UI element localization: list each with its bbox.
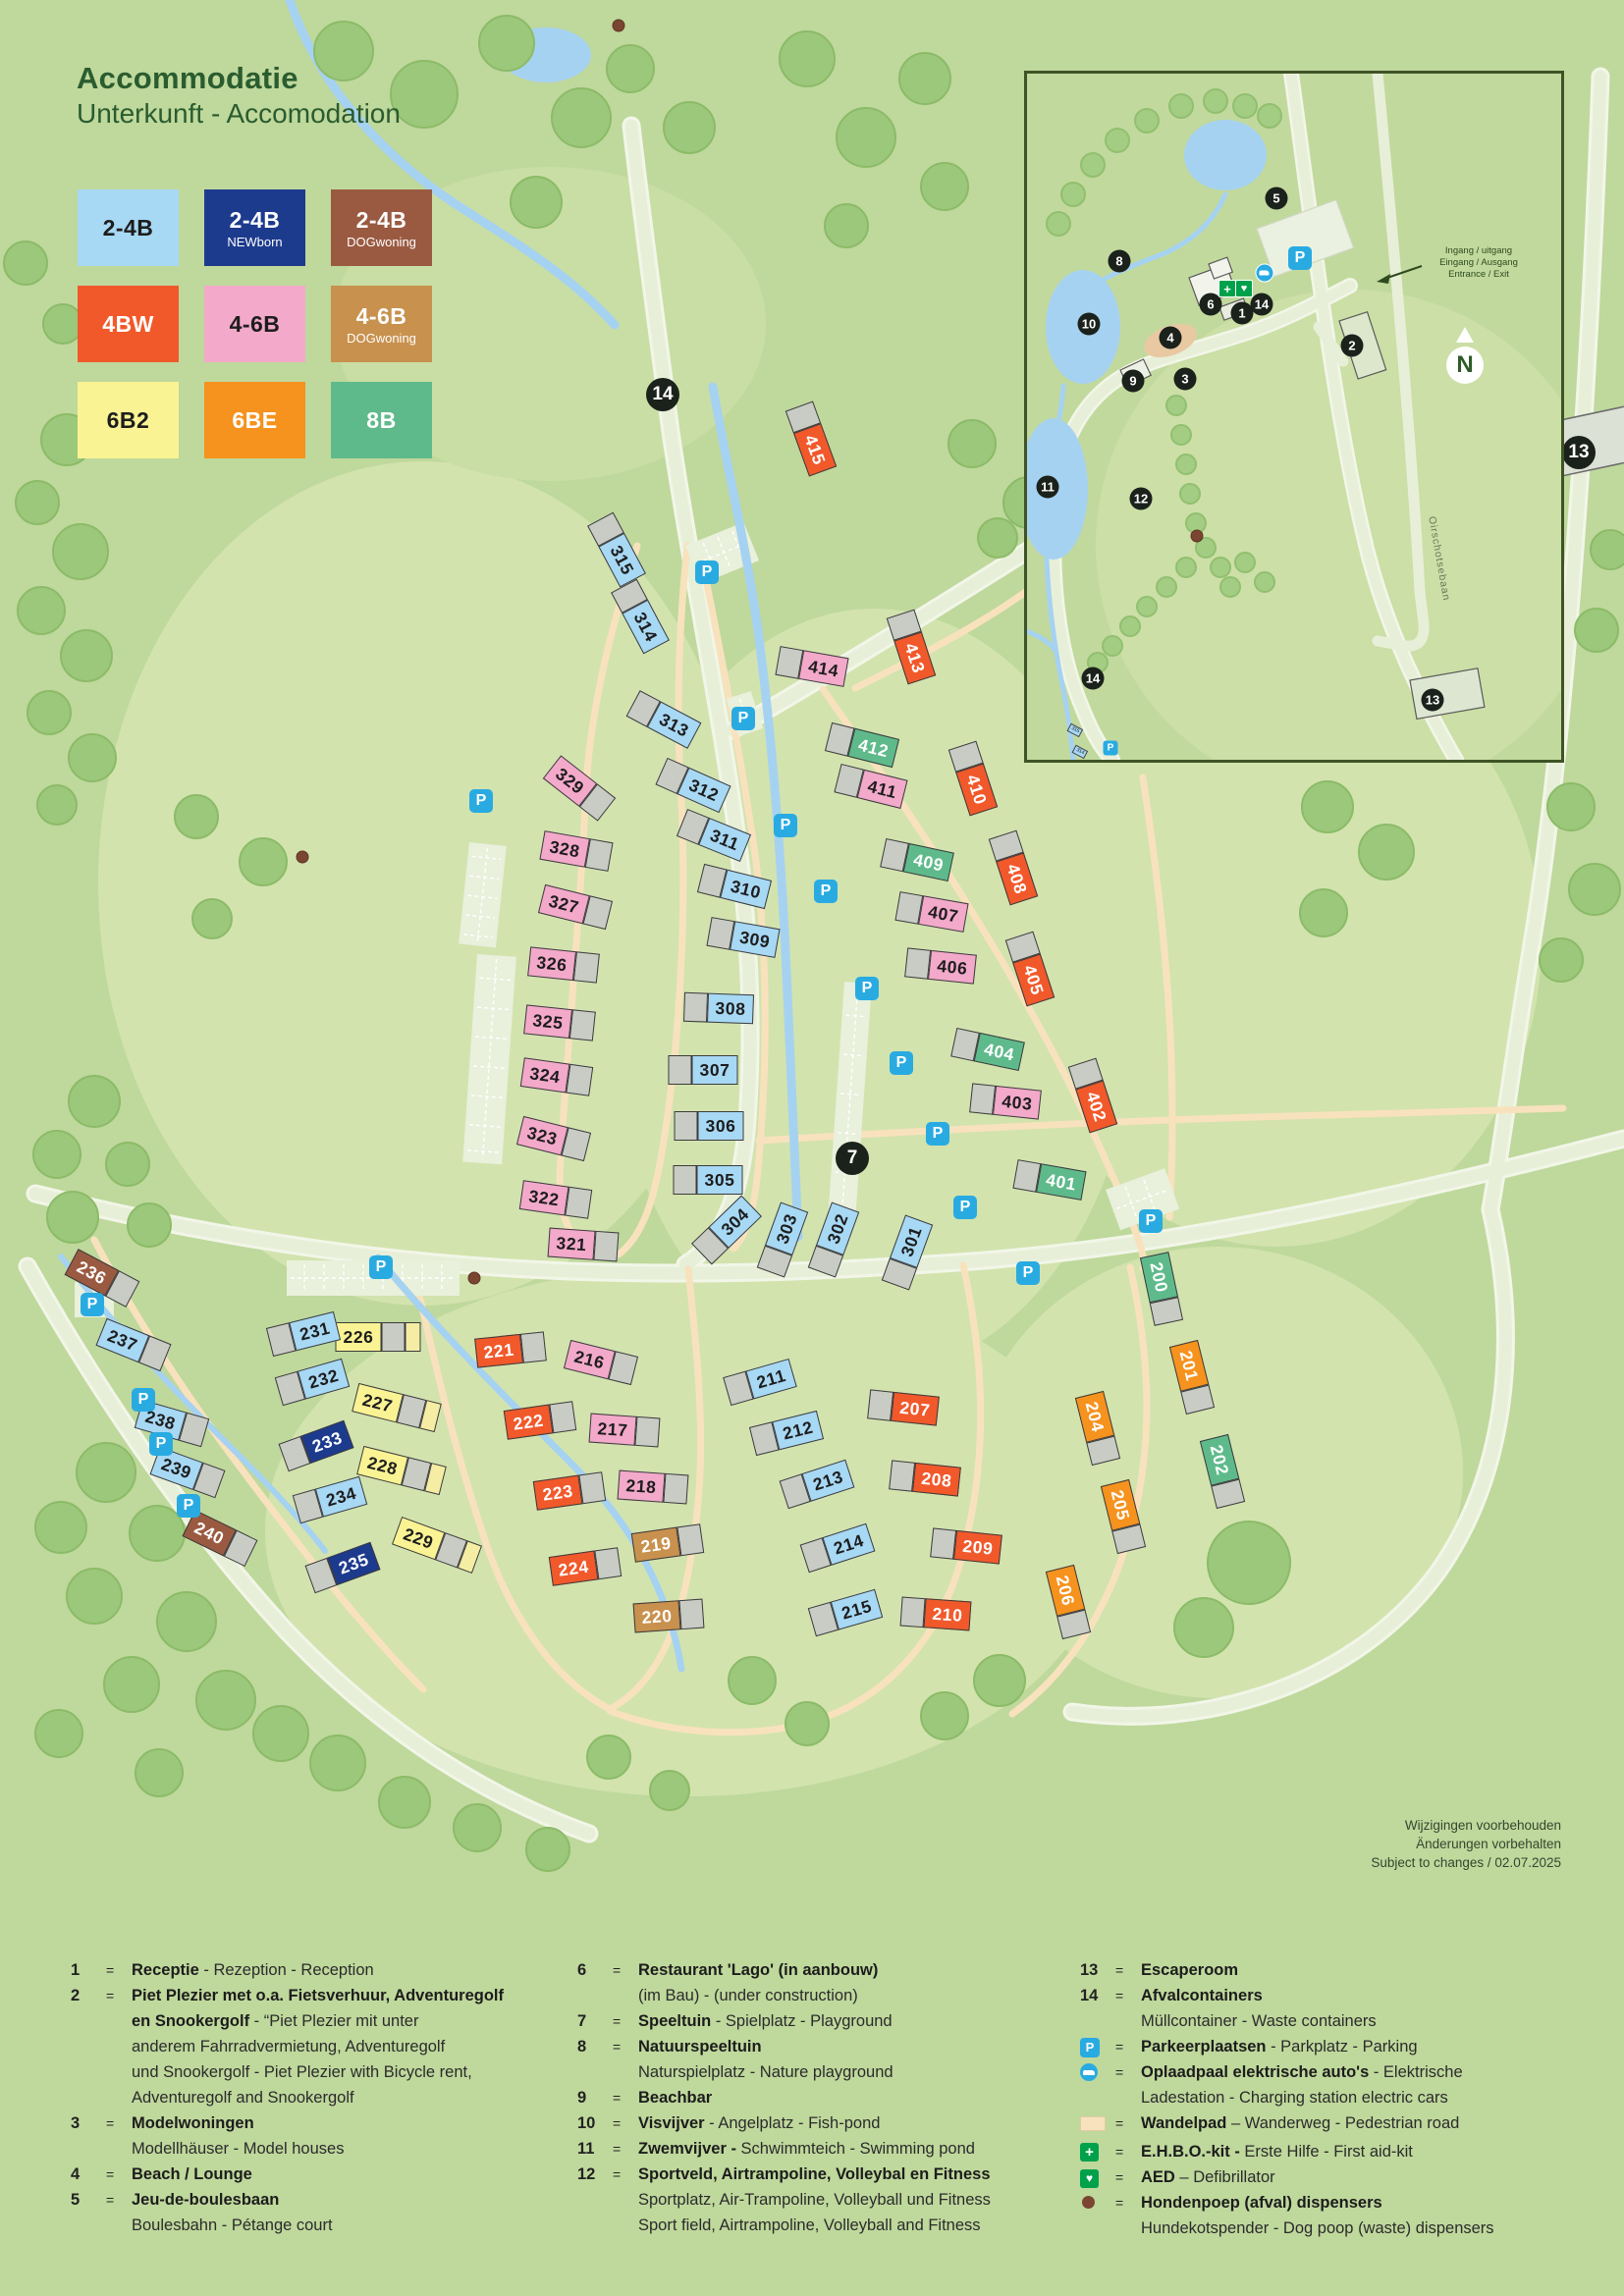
legend-column-3: 13=Escaperoom14=AfvalcontainersMüllconta… bbox=[1080, 1957, 1551, 2241]
equals-sign: = bbox=[106, 1957, 132, 1983]
building-number: 322 bbox=[519, 1180, 569, 1215]
legend-item: 2=Piet Plezier met o.a. Fietsverhuur, Ad… bbox=[71, 1983, 542, 2110]
equals-sign: = bbox=[613, 1957, 638, 1983]
note-line: Subject to changes / 02.07.2025 bbox=[1371, 1853, 1561, 1872]
parking-icon: P bbox=[1139, 1209, 1163, 1233]
equals-sign: = bbox=[1115, 2164, 1141, 2190]
tree-icon bbox=[552, 88, 611, 147]
tree-icon bbox=[18, 587, 65, 634]
equals-sign: = bbox=[106, 2162, 132, 2187]
legend-text: AED – Defibrillator bbox=[1141, 2164, 1551, 2190]
legend-line-rest: Schwimmteich - Swimming pond bbox=[736, 2140, 975, 2158]
type-swatch-8B: 8B bbox=[331, 382, 432, 458]
legend-item: 13=Escaperoom bbox=[1080, 1957, 1551, 1983]
building-number: 308 bbox=[707, 993, 754, 1025]
type-swatch-2-4B-DOGwoning: 2-4BDOGwoning bbox=[331, 189, 432, 266]
building-308: 308 bbox=[683, 992, 754, 1024]
tree-icon bbox=[607, 45, 654, 92]
type-sublabel: DOGwoning bbox=[347, 331, 416, 346]
equals-sign: = bbox=[613, 2136, 638, 2162]
dog-waste-icon bbox=[1082, 2196, 1095, 2209]
legend-line-bold: Piet Plezier met o.a. Fietsverhuur, Adve… bbox=[132, 1987, 504, 2004]
legend-text: Wandelpad – Wanderweg - Pedestrian road bbox=[1141, 2110, 1551, 2136]
legend-text: Hondenpoep (afval) dispensersHundekotspe… bbox=[1141, 2190, 1551, 2241]
type-swatch-4-6B-DOGwoning: 4-6BDOGwoning bbox=[331, 286, 432, 362]
building-number: 321 bbox=[548, 1228, 596, 1260]
legend-line-rest: - Elektrische bbox=[1369, 2063, 1462, 2081]
legend-line: Natuurspeeltuin bbox=[638, 2034, 1049, 2059]
tree-icon bbox=[1211, 558, 1230, 577]
legend-key: + bbox=[1080, 2139, 1115, 2164]
tree-icon bbox=[1171, 425, 1191, 445]
tree-icon bbox=[1569, 864, 1620, 915]
type-swatch-2-4B: 2-4B bbox=[78, 189, 179, 266]
legend-key: 11 bbox=[577, 2136, 613, 2162]
tree-icon bbox=[192, 899, 232, 938]
inset-decor bbox=[1027, 74, 1561, 760]
parking-icon: P bbox=[149, 1432, 173, 1456]
tree-icon bbox=[1575, 609, 1618, 652]
legend-key: ♥ bbox=[1080, 2164, 1115, 2190]
legend-line-rest: Erste Hilfe - First aid-kit bbox=[1240, 2143, 1413, 2161]
legend-key: 7 bbox=[577, 2008, 613, 2034]
building-307: 307 bbox=[669, 1055, 738, 1085]
tree-icon bbox=[196, 1671, 255, 1730]
equals-sign: = bbox=[1115, 2034, 1141, 2059]
building-annex bbox=[663, 1473, 688, 1505]
legend-line-bold: Wandelpad bbox=[1141, 2114, 1226, 2132]
type-code: 8B bbox=[366, 407, 396, 434]
equals-sign: = bbox=[106, 2187, 132, 2213]
tree-icon bbox=[785, 1702, 829, 1745]
legend-text: ModelwoningenModellhäuser - Model houses bbox=[132, 2110, 542, 2162]
building-number: 210 bbox=[923, 1598, 971, 1630]
poi-marker-7: 7 bbox=[836, 1142, 869, 1175]
building-annex bbox=[565, 1187, 592, 1219]
accommodation-type-legend: 2-4B2-4BNEWborn2-4BDOGwoning4BW4-6B4-6BD… bbox=[78, 189, 432, 458]
building-annex bbox=[678, 1599, 704, 1630]
equals-sign: = bbox=[613, 2110, 638, 2136]
building-210: 210 bbox=[900, 1597, 972, 1631]
legend-item: 11=Zwemvijver - Schwimmteich - Swimming … bbox=[577, 2136, 1049, 2162]
tree-icon bbox=[978, 518, 1017, 558]
building-number: 226 bbox=[336, 1322, 382, 1352]
legend-text: Oplaadpaal elektrische auto's - Elektris… bbox=[1141, 2059, 1551, 2110]
tree-icon bbox=[1180, 484, 1200, 504]
parking-icon: P bbox=[890, 1051, 913, 1075]
building-annex bbox=[675, 1111, 698, 1141]
tree-icon bbox=[391, 61, 458, 128]
equals-sign: = bbox=[1115, 2139, 1141, 2164]
building-number: 306 bbox=[698, 1111, 744, 1141]
pedestrian-road-swatch bbox=[1080, 2116, 1106, 2131]
inset-poi-marker-8: 8 bbox=[1109, 250, 1131, 273]
legend-line-bold: Parkeerplaatsen bbox=[1141, 2038, 1267, 2056]
legend-column-1: 1=Receptie - Rezeption - Reception2=Piet… bbox=[71, 1957, 542, 2238]
dog-waste-dispenser-icon bbox=[613, 20, 625, 32]
legend-item: 9=Beachbar bbox=[577, 2085, 1049, 2110]
legend-item: =Oplaadpaal elektrische auto's - Elektri… bbox=[1080, 2059, 1551, 2110]
parking-icon: P bbox=[926, 1122, 949, 1146]
equals-sign: = bbox=[1115, 2059, 1141, 2085]
legend-key bbox=[1080, 2190, 1115, 2216]
legend-text: Visvijver - Angelplatz - Fish-pond bbox=[638, 2110, 1049, 2136]
building-number: 209 bbox=[953, 1530, 1002, 1565]
legend-key bbox=[1080, 2110, 1115, 2139]
tree-icon bbox=[587, 1735, 630, 1779]
building-number: 221 bbox=[474, 1334, 523, 1368]
building-annex-segment bbox=[406, 1322, 421, 1352]
legend-line: Hundekotspender - Dog poop (waste) dispe… bbox=[1141, 2216, 1551, 2241]
parking-icon: P bbox=[774, 814, 797, 837]
building-annex bbox=[569, 1009, 596, 1041]
tree-icon bbox=[1359, 825, 1414, 880]
legend-line-bold: E.H.B.O.-kit - bbox=[1141, 2143, 1240, 2161]
building-annex bbox=[634, 1416, 660, 1448]
building-226: 226 bbox=[336, 1322, 421, 1352]
tree-icon bbox=[310, 1735, 365, 1790]
tree-icon bbox=[35, 1710, 82, 1757]
legend-line: Modelwoningen bbox=[132, 2110, 542, 2136]
parking-icon: P bbox=[1104, 741, 1118, 756]
building-annex bbox=[669, 1055, 692, 1085]
legend-line: Parkeerplaatsen - Parkplatz - Parking bbox=[1141, 2034, 1551, 2059]
legend-key: 12 bbox=[577, 2162, 613, 2187]
legend-line-bold: Sportveld, Airtrampoline, Volleybal en F… bbox=[638, 2165, 991, 2183]
legend-item: ♥=AED – Defibrillator bbox=[1080, 2164, 1551, 2190]
building-annex bbox=[683, 992, 708, 1023]
legend-line-bold: AED bbox=[1141, 2168, 1175, 2186]
legend-item: P=Parkeerplaatsen - Parkplatz - Parking bbox=[1080, 2034, 1551, 2059]
legend-line: Visvijver - Angelplatz - Fish-pond bbox=[638, 2110, 1049, 2136]
type-code: 4-6B bbox=[230, 311, 281, 338]
legend-line-rest: Ladestation - Charging station electric … bbox=[1141, 2089, 1448, 2107]
equals-sign: = bbox=[613, 2162, 638, 2187]
entrance-label: Ingang / uitgang Eingang / Ausgang Entra… bbox=[1415, 245, 1543, 281]
inset-poi-marker-4: 4 bbox=[1160, 327, 1182, 349]
legend-text: Sportveld, Airtrampoline, Volleybal en F… bbox=[638, 2162, 1049, 2238]
legend-line: Receptie - Rezeption - Reception bbox=[132, 1957, 542, 1983]
type-sublabel: DOGwoning bbox=[347, 235, 416, 249]
building-number: 325 bbox=[523, 1004, 572, 1039]
legend-item: =Hondenpoep (afval) dispensersHundekotsp… bbox=[1080, 2190, 1551, 2241]
legend-key: 13 bbox=[1080, 1957, 1115, 1983]
tree-icon bbox=[1081, 153, 1105, 177]
inset-poi-marker-3: 3 bbox=[1174, 368, 1197, 391]
parking-icon: P bbox=[814, 880, 838, 903]
ev-charging-icon bbox=[1080, 2063, 1098, 2081]
tree-icon bbox=[825, 204, 868, 247]
inset-poi-marker-2: 2 bbox=[1341, 335, 1364, 357]
tree-icon bbox=[729, 1657, 776, 1704]
building-annex bbox=[930, 1527, 956, 1559]
legend-text: AfvalcontainersMüllcontainer - Waste con… bbox=[1141, 1983, 1551, 2034]
legend-line-rest: Boulesbahn - Pétange court bbox=[132, 2216, 333, 2234]
legend-line: Beachbar bbox=[638, 2085, 1049, 2110]
legend-line-bold: Afvalcontainers bbox=[1141, 1987, 1263, 2004]
type-code: 6B2 bbox=[107, 407, 150, 434]
legend-text: Speeltuin - Spielplatz - Playground bbox=[638, 2008, 1049, 2034]
ev-charging-icon bbox=[1256, 264, 1274, 283]
legend-line: Adventuregolf and Snookergolf bbox=[132, 2085, 542, 2110]
legend-text: Beachbar bbox=[638, 2085, 1049, 2110]
legend-line-rest: (im Bau) - (under construction) bbox=[638, 1987, 858, 2004]
legend-line-rest: - Rezeption - Reception bbox=[199, 1961, 374, 1979]
equals-sign: = bbox=[613, 2085, 638, 2110]
legend-line-bold: Visvijver bbox=[638, 2114, 705, 2132]
tree-icon bbox=[1047, 212, 1070, 236]
building-annex bbox=[549, 1401, 576, 1433]
parking-icon: P bbox=[855, 977, 879, 1000]
tree-icon bbox=[128, 1203, 171, 1247]
legend-item: +=E.H.B.O.-kit - Erste Hilfe - First aid… bbox=[1080, 2139, 1551, 2164]
equals-sign: = bbox=[1115, 1983, 1141, 2008]
tree-icon bbox=[948, 420, 996, 467]
legend-line-bold: Zwemvijver - bbox=[638, 2140, 736, 2158]
legend-line: Wandelpad – Wanderweg - Pedestrian road bbox=[1141, 2110, 1551, 2136]
tree-icon bbox=[1061, 183, 1085, 206]
legend-item: 12=Sportveld, Airtrampoline, Volleybal e… bbox=[577, 2162, 1049, 2238]
type-sublabel: NEWborn bbox=[227, 235, 282, 249]
tree-icon bbox=[837, 108, 895, 167]
tree-icon bbox=[1204, 89, 1227, 113]
building-annex bbox=[867, 1389, 893, 1420]
parking-icon: P bbox=[177, 1494, 200, 1518]
tree-icon bbox=[1208, 1522, 1290, 1604]
tree-icon bbox=[1176, 454, 1196, 474]
tree-icon bbox=[35, 1502, 86, 1553]
legend-line-rest: Hundekotspender - Dog poop (waste) dispe… bbox=[1141, 2219, 1494, 2237]
legend-line-rest: und Snookergolf - Piet Plezier with Bicy… bbox=[132, 2063, 472, 2081]
tree-icon bbox=[104, 1657, 159, 1712]
legend-line-bold: Hondenpoep (afval) dispensers bbox=[1141, 2194, 1382, 2212]
building-220: 220 bbox=[633, 1599, 705, 1633]
building-annex bbox=[578, 1471, 606, 1504]
legend-line-rest: - Spielplatz - Playground bbox=[711, 2012, 892, 2030]
legend-line: en Snookergolf - “Piet Plezier mit unter bbox=[132, 2008, 542, 2034]
aed-icon: ♥ bbox=[1235, 280, 1253, 297]
tree-icon bbox=[77, 1443, 135, 1502]
tree-icon bbox=[1169, 94, 1193, 118]
building-number: 305 bbox=[697, 1165, 743, 1195]
legend-line-rest: Adventuregolf and Snookergolf bbox=[132, 2089, 354, 2107]
tree-icon bbox=[37, 785, 77, 825]
tree-icon bbox=[314, 22, 373, 80]
tree-icon bbox=[33, 1131, 81, 1178]
legend-text: Escaperoom bbox=[1141, 1957, 1551, 1983]
first-aid-icon: + bbox=[1080, 2143, 1099, 2162]
legend-line: Hondenpoep (afval) dispensers bbox=[1141, 2190, 1551, 2216]
tree-icon bbox=[1220, 577, 1240, 597]
legend-line-rest: Sport field, Airtrampoline, Volleyball a… bbox=[638, 2216, 981, 2234]
legend-line: Escaperoom bbox=[1141, 1957, 1551, 1983]
tree-icon bbox=[1300, 889, 1347, 936]
type-code: 2-4B bbox=[356, 207, 407, 234]
parking-icon: P bbox=[369, 1255, 393, 1279]
legend-line-rest: Sportplatz, Air-Trampoline, Volleyball u… bbox=[638, 2191, 991, 2209]
tree-icon bbox=[1547, 783, 1595, 830]
tree-icon bbox=[1235, 553, 1255, 572]
equals-sign: = bbox=[106, 1983, 132, 2008]
legend-item: 3=ModelwoningenModellhäuser - Model hous… bbox=[71, 2110, 542, 2162]
entrance-line: Ingang / uitgang bbox=[1415, 245, 1543, 257]
building-number: 324 bbox=[520, 1057, 570, 1093]
type-swatch-6B2: 6B2 bbox=[78, 382, 179, 458]
compass-north-triangle bbox=[1456, 327, 1474, 343]
tree-icon bbox=[106, 1143, 149, 1186]
tree-icon bbox=[47, 1192, 98, 1243]
tree-icon bbox=[1174, 1598, 1233, 1657]
legend-item: =Wandelpad – Wanderweg - Pedestrian road bbox=[1080, 2110, 1551, 2139]
page-title: Accommodatie bbox=[77, 61, 298, 96]
legend-line-bold: en Snookergolf bbox=[132, 2012, 249, 2030]
tree-icon bbox=[157, 1592, 216, 1651]
building-annex bbox=[382, 1322, 406, 1352]
building-217: 217 bbox=[589, 1414, 661, 1448]
tree-icon bbox=[1106, 129, 1129, 152]
legend-key: 2 bbox=[71, 1983, 106, 2008]
building-321: 321 bbox=[548, 1228, 620, 1262]
legend-line-rest: - “Piet Plezier mit unter bbox=[249, 2012, 418, 2030]
tree-icon bbox=[899, 53, 950, 104]
legend-line-bold: Beachbar bbox=[638, 2089, 712, 2107]
legend-line: Naturspielplatz - Nature playground bbox=[638, 2059, 1049, 2085]
tree-icon bbox=[175, 795, 218, 838]
legend-text: Piet Plezier met o.a. Fietsverhuur, Adve… bbox=[132, 1983, 542, 2110]
legend-item: 7=Speeltuin - Spielplatz - Playground bbox=[577, 2008, 1049, 2034]
legend-line: und Snookergolf - Piet Plezier with Bicy… bbox=[132, 2059, 542, 2085]
type-code: 2-4B bbox=[230, 207, 281, 234]
legend-item: 6=Restaurant 'Lago' (in aanbouw)(im Bau)… bbox=[577, 1957, 1049, 2008]
tree-icon bbox=[511, 177, 562, 228]
equals-sign: = bbox=[613, 2008, 638, 2034]
inset-poi-marker-12: 12 bbox=[1130, 488, 1153, 510]
building-annex bbox=[585, 838, 614, 872]
legend-line: Afvalcontainers bbox=[1141, 1983, 1551, 2008]
legend-line-rest: Modellhäuser - Model houses bbox=[132, 2140, 344, 2158]
note-line: Änderungen vorbehalten bbox=[1371, 1835, 1561, 1853]
legend-text: Beach / Lounge bbox=[132, 2162, 542, 2187]
legend-key: 1 bbox=[71, 1957, 106, 1983]
tree-icon bbox=[1137, 597, 1157, 616]
tree-icon bbox=[53, 524, 108, 579]
building-number: 207 bbox=[891, 1392, 940, 1426]
legend-line-bold: Escaperoom bbox=[1141, 1961, 1238, 1979]
legend-line-bold: Receptie bbox=[132, 1961, 199, 1979]
tree-icon bbox=[240, 838, 287, 885]
parking-icon: P bbox=[132, 1388, 155, 1412]
overview-inset-map: Ingang / uitgang Eingang / Ausgang Entra… bbox=[1024, 71, 1564, 763]
legend-line-rest: - Parkplatz - Parking bbox=[1267, 2038, 1418, 2056]
tree-icon bbox=[1135, 109, 1159, 133]
building-218: 218 bbox=[618, 1470, 689, 1505]
legend-item: 10=Visvijver - Angelplatz - Fish-pond bbox=[577, 2110, 1049, 2136]
tree-icon bbox=[921, 163, 968, 210]
tree-icon bbox=[61, 630, 112, 681]
legend-line-bold: Speeltuin bbox=[638, 2012, 711, 2030]
legend-item: 4=Beach / Lounge bbox=[71, 2162, 542, 2187]
legend-line: Restaurant 'Lago' (in aanbouw) bbox=[638, 1957, 1049, 1983]
building-number: 217 bbox=[589, 1414, 637, 1446]
parking-icon: P bbox=[1288, 246, 1312, 270]
building-number: 406 bbox=[928, 950, 977, 985]
parking-icon: P bbox=[953, 1196, 977, 1219]
type-code: 4-6B bbox=[356, 303, 407, 330]
legend-line-rest: Naturspielplatz - Nature playground bbox=[638, 2063, 893, 2081]
equals-sign: = bbox=[1115, 2110, 1141, 2136]
poi-marker-14: 14 bbox=[646, 378, 679, 411]
tree-icon bbox=[1103, 636, 1122, 656]
legend-line: Zwemvijver - Schwimmteich - Swimming pon… bbox=[638, 2136, 1049, 2162]
legend-line-bold: Beach / Lounge bbox=[132, 2165, 252, 2183]
building-number: 218 bbox=[618, 1470, 666, 1503]
legend-line-bold: Restaurant 'Lago' (in aanbouw) bbox=[638, 1961, 878, 1979]
legend-line-rest: anderem Fahrradvermietung, Adventuregolf bbox=[132, 2038, 445, 2056]
tree-icon bbox=[27, 691, 71, 734]
legend-key: 5 bbox=[71, 2187, 106, 2213]
building-annex bbox=[566, 1064, 593, 1096]
legend-text: Zwemvijver - Schwimmteich - Swimming pon… bbox=[638, 2136, 1049, 2162]
inset-poi-marker-5: 5 bbox=[1266, 187, 1288, 210]
building-annex bbox=[889, 1460, 915, 1491]
type-code: 6BE bbox=[232, 407, 277, 434]
legend-line: Sportveld, Airtrampoline, Volleybal en F… bbox=[638, 2162, 1049, 2187]
building-305: 305 bbox=[674, 1165, 743, 1195]
legend-line-rest: – Wanderweg - Pedestrian road bbox=[1226, 2114, 1459, 2132]
legend-key bbox=[1080, 2059, 1115, 2089]
legend-line: Sportplatz, Air-Trampoline, Volleyball u… bbox=[638, 2187, 1049, 2213]
legend-line: Modellhäuser - Model houses bbox=[132, 2136, 542, 2162]
tree-icon bbox=[1176, 558, 1196, 577]
type-swatch-4-6B: 4-6B bbox=[204, 286, 305, 362]
legend-line: (im Bau) - (under construction) bbox=[638, 1983, 1049, 2008]
legend-key: P bbox=[1080, 2034, 1115, 2059]
parking-icon: P bbox=[1080, 2038, 1100, 2057]
tree-icon bbox=[454, 1804, 501, 1851]
inset-poi-marker-13: 13 bbox=[1422, 689, 1444, 712]
legend-line: Piet Plezier met o.a. Fietsverhuur, Adve… bbox=[132, 1983, 542, 2008]
legend-item: 8=NatuurspeeltuinNaturspielplatz - Natur… bbox=[577, 2034, 1049, 2085]
type-swatch-2-4B-NEWborn: 2-4BNEWborn bbox=[204, 189, 305, 266]
building-annex bbox=[593, 1231, 619, 1262]
poi-marker-13: 13 bbox=[1562, 436, 1596, 469]
first-aid-icon: + bbox=[1218, 280, 1236, 297]
legend-text: Receptie - Rezeption - Reception bbox=[132, 1957, 542, 1983]
entrance-line: Eingang / Ausgang bbox=[1415, 257, 1543, 269]
tree-icon bbox=[1233, 94, 1257, 118]
legend-line-bold: Oplaadpaal elektrische auto's bbox=[1141, 2063, 1369, 2081]
legend-text: E.H.B.O.-kit - Erste Hilfe - First aid-k… bbox=[1141, 2139, 1551, 2164]
legend-line-rest: Müllcontainer - Waste containers bbox=[1141, 2012, 1377, 2030]
legend-line-bold: Jeu-de-boulesbaan bbox=[132, 2191, 279, 2209]
legend-key: 4 bbox=[71, 2162, 106, 2187]
inset-poi-marker-10: 10 bbox=[1078, 313, 1101, 336]
tree-icon bbox=[1120, 616, 1140, 636]
legend-line-rest: - Angelplatz - Fish-pond bbox=[705, 2114, 881, 2132]
equals-sign: = bbox=[106, 2110, 132, 2136]
legend-key: 3 bbox=[71, 2110, 106, 2136]
tree-icon bbox=[1540, 938, 1583, 982]
building-annex bbox=[520, 1331, 547, 1362]
legend-column-2: 6=Restaurant 'Lago' (in aanbouw)(im Bau)… bbox=[577, 1957, 1049, 2238]
tree-icon bbox=[1302, 781, 1353, 832]
inset-poi-marker-11: 11 bbox=[1037, 476, 1059, 499]
legend-text: NatuurspeeltuinNaturspielplatz - Nature … bbox=[638, 2034, 1049, 2085]
building-annex bbox=[594, 1547, 622, 1579]
legend-text: Restaurant 'Lago' (in aanbouw)(im Bau) -… bbox=[638, 1957, 1049, 2008]
building-number: 326 bbox=[527, 946, 576, 981]
parking-icon: P bbox=[731, 707, 755, 730]
